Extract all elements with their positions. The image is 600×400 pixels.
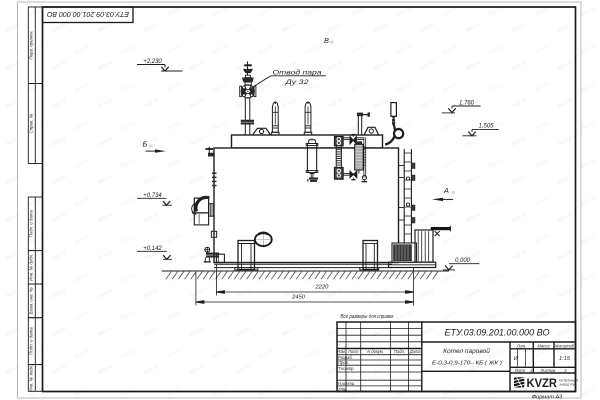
svg-text:1,760: 1,760	[459, 100, 475, 106]
svg-text:1:15: 1:15	[559, 356, 571, 362]
svg-text:Перв. примен.: Перв. примен.	[29, 30, 34, 59]
svg-text:Изм.: Изм.	[337, 349, 346, 354]
svg-text:0,000: 0,000	[455, 258, 471, 264]
svg-text:2450: 2450	[291, 295, 306, 301]
svg-text:Лист: Лист	[514, 368, 526, 373]
svg-text:Утв.: Утв.	[338, 386, 347, 391]
svg-text:Пров.: Пров.	[338, 360, 349, 365]
svg-text:N докум.: N докум.	[367, 349, 384, 354]
svg-text:Б: Б	[143, 140, 148, 149]
svg-text:Листов: Листов	[540, 368, 557, 373]
svg-text:Е-0,3-0,9-170– КБ ( ЖК ): Е-0,3-0,9-170– КБ ( ЖК )	[432, 361, 502, 367]
svg-text:Т.контр.: Т.контр.	[338, 366, 355, 371]
svg-text:1,505: 1,505	[478, 124, 494, 130]
svg-text:Дата: Дата	[409, 349, 422, 354]
svg-text:Все размеры для справок: Все размеры для справок	[341, 314, 394, 320]
svg-text:Взам. инв. №: Взам. инв. №	[29, 287, 34, 314]
svg-text:Инв. № дубл.: Инв. № дубл.	[29, 254, 34, 281]
svg-text:Масштаб: Масштаб	[555, 343, 575, 348]
svg-text:Подп. и дата: Подп. и дата	[29, 327, 34, 355]
svg-text:ЗАВОД РЭР: ЗАВОД РЭР	[559, 383, 576, 387]
svg-text:+0,734: +0,734	[143, 193, 162, 199]
svg-text:ЕТУ.03.09.201.00.000 ВО: ЕТУ.03.09.201.00.000 ВО	[47, 10, 129, 19]
svg-text:Отвод пара: Отвод пара	[273, 68, 322, 76]
svg-text:1: 1	[530, 368, 532, 373]
svg-text:Инв. № подл.: Инв. № подл.	[29, 364, 34, 391]
svg-text:Лит.: Лит.	[516, 343, 527, 348]
svg-text:В: В	[324, 36, 329, 45]
svg-text:И: И	[514, 356, 518, 362]
svg-text:Ду 32: Ду 32	[284, 79, 309, 86]
svg-text:Лист: Лист	[347, 349, 359, 354]
svg-text:Н.контр.: Н.контр.	[338, 381, 355, 386]
svg-text:Котел паровой: Котел паровой	[443, 347, 490, 355]
svg-text:KVZR: KVZR	[527, 376, 558, 390]
svg-text:Подп. и дата: Подп. и дата	[29, 210, 34, 238]
svg-text:Масса: Масса	[537, 343, 550, 348]
svg-text:Справ. №: Справ. №	[29, 113, 34, 133]
svg-text:+0,142: +0,142	[143, 246, 162, 252]
svg-text:А: А	[443, 186, 449, 195]
svg-text:Формат А3: Формат А3	[532, 394, 563, 400]
svg-text:ЕТУ.03.09.201.00.000 ВО: ЕТУ.03.09.201.00.000 ВО	[445, 326, 551, 337]
svg-text:+2,230: +2,230	[143, 59, 162, 65]
svg-text:2220: 2220	[314, 285, 329, 291]
svg-text:Подп.: Подп.	[394, 349, 405, 354]
